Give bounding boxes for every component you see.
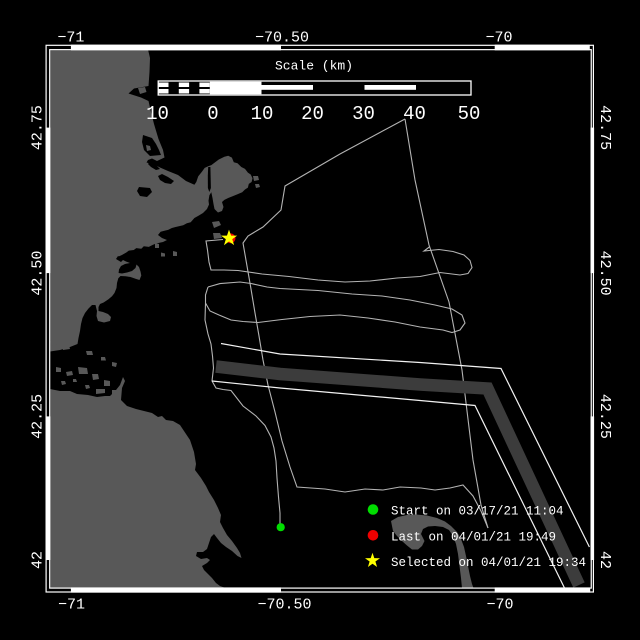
svg-text:Start on 03/17/21 11:04: Start on 03/17/21 11:04 <box>391 505 564 519</box>
svg-text:−71: −71 <box>57 30 84 47</box>
svg-text:42.25: 42.25 <box>30 394 47 439</box>
svg-text:−70: −70 <box>485 30 512 47</box>
svg-text:42.50: 42.50 <box>596 251 613 296</box>
svg-text:0: 0 <box>207 103 218 125</box>
svg-text:42.75: 42.75 <box>30 105 47 150</box>
svg-text:42.75: 42.75 <box>596 105 613 150</box>
svg-text:42.50: 42.50 <box>30 251 47 296</box>
svg-text:42.25: 42.25 <box>596 394 613 439</box>
svg-text:20: 20 <box>301 103 324 125</box>
svg-text:−70.50: −70.50 <box>255 30 309 47</box>
svg-text:Scale (km): Scale (km) <box>275 59 353 74</box>
svg-text:30: 30 <box>352 103 375 125</box>
svg-text:42: 42 <box>30 551 47 569</box>
svg-text:−70.50: −70.50 <box>257 597 311 614</box>
svg-text:42: 42 <box>596 551 613 569</box>
svg-text:−71: −71 <box>58 597 85 614</box>
svg-text:50: 50 <box>458 103 481 125</box>
svg-text:Selected on 04/01/21 19:34: Selected on 04/01/21 19:34 <box>391 556 586 570</box>
svg-text:−70: −70 <box>486 597 513 614</box>
svg-text:10: 10 <box>251 103 274 125</box>
svg-text:10: 10 <box>146 103 169 125</box>
svg-text:40: 40 <box>403 103 426 125</box>
svg-text:Last on 04/01/21 19:49: Last on 04/01/21 19:49 <box>391 530 556 544</box>
